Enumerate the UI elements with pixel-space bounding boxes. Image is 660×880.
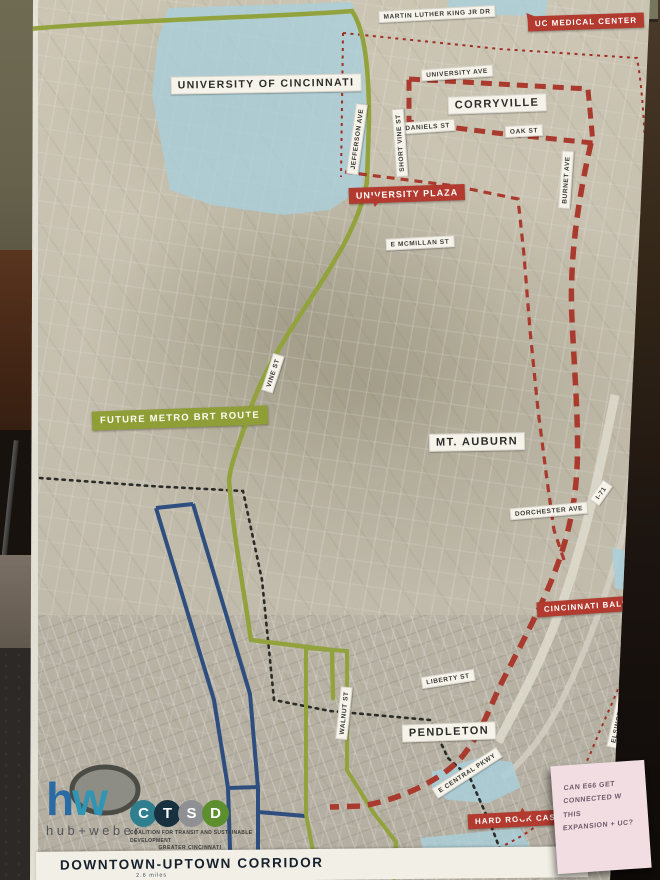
main-route-red-dashed <box>330 143 591 807</box>
callout-text: FUTURE METRO BRT ROUTE <box>100 410 260 427</box>
hw-monogram: hw <box>46 776 142 822</box>
ctsd-tagline: COALITION FOR TRANSIT AND SUSTAINABLE DE… <box>130 830 290 845</box>
area-label-pendleton: PENDLETON <box>402 721 497 742</box>
ctsd-letter-d: D <box>202 800 229 827</box>
sticky-note-text: CAN E66 GET CONNECTED W THIS EXPANSION +… <box>563 775 642 835</box>
hw-letter-h: h <box>46 773 72 825</box>
ctsd-logo: C T S D COALITION FOR TRANSIT AND SUSTAI… <box>130 800 290 851</box>
area-label-university: UNIVERSITY OF CINCINNATI <box>170 73 361 94</box>
map-title: DOWNTOWN-UPTOWN CORRIDOR <box>60 855 324 873</box>
photo-scene: MARTIN LUTHER KING JR DR UNIVERSITY AVE … <box>0 0 660 880</box>
uc-campus-highlight <box>152 2 368 215</box>
area-label-corryville: CORRYVILLE <box>447 93 546 114</box>
ctsd-letter-t: T <box>154 800 181 827</box>
poi-label-text: UC MEDICAL CENTER <box>535 16 637 29</box>
sticky-note: CAN E66 GET CONNECTED W THIS EXPANSION +… <box>550 760 651 874</box>
hw-wordmark: hub+weber <box>46 824 142 837</box>
title-strip: DOWNTOWN-UPTOWN CORRIDOR 2.6 miles <box>36 846 588 880</box>
hub-weber-logo: hw hub+weber <box>46 776 142 837</box>
map-subtitle: 2.6 miles <box>136 873 167 879</box>
callout-pointer <box>516 800 529 819</box>
secondary-route-red-dashed <box>345 172 564 560</box>
map-board: MARTIN LUTHER KING JR DR UNIVERSITY AVE … <box>0 0 660 880</box>
ctsd-letter-s: S <box>178 800 205 827</box>
brt-route-green-loop <box>306 648 396 878</box>
route-overlay <box>0 0 660 880</box>
street-label-oak: OAK ST <box>505 124 544 138</box>
ctsd-circles: C T S D <box>130 800 290 827</box>
hw-letter-w: w <box>72 773 106 825</box>
area-label-mt-auburn: MT. AUBURN <box>429 432 525 452</box>
ctsd-letter-c: C <box>130 800 157 827</box>
